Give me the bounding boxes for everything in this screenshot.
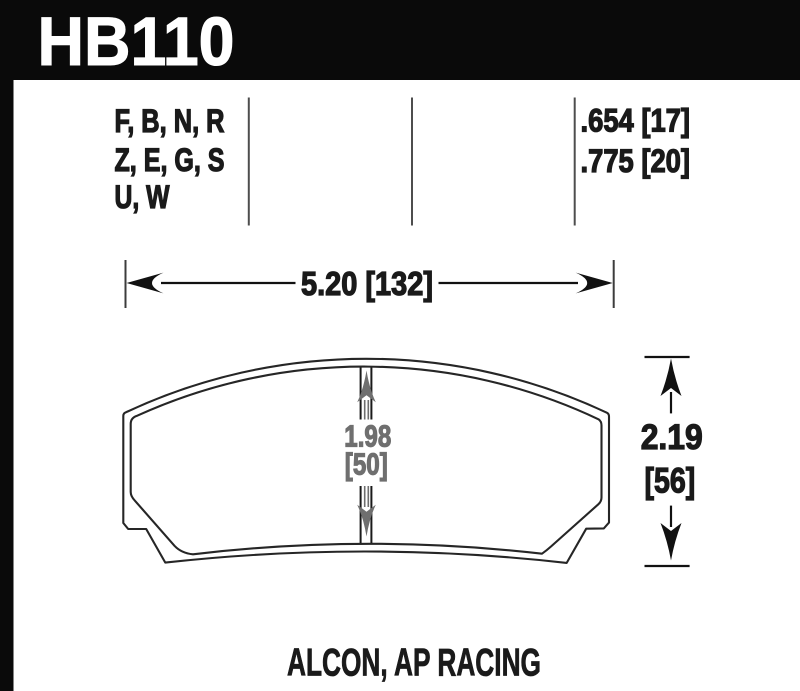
svg-text:ALCON, AP RACING: ALCON, AP RACING: [287, 641, 541, 684]
svg-text:F, B, N, R: F, B, N, R: [115, 102, 225, 139]
svg-text:[50]: [50]: [345, 447, 388, 482]
svg-text:.654 [17]: .654 [17]: [581, 102, 691, 139]
svg-text:5.20 [132]: 5.20 [132]: [301, 266, 433, 303]
svg-text:[56]: [56]: [645, 461, 696, 501]
svg-text:HB110: HB110: [38, 4, 235, 80]
svg-text:2.19: 2.19: [641, 417, 703, 457]
svg-text:U, W: U, W: [115, 178, 170, 215]
svg-text:Z, E, G, S: Z, E, G, S: [115, 141, 225, 178]
svg-text:.775 [20]: .775 [20]: [581, 142, 691, 179]
